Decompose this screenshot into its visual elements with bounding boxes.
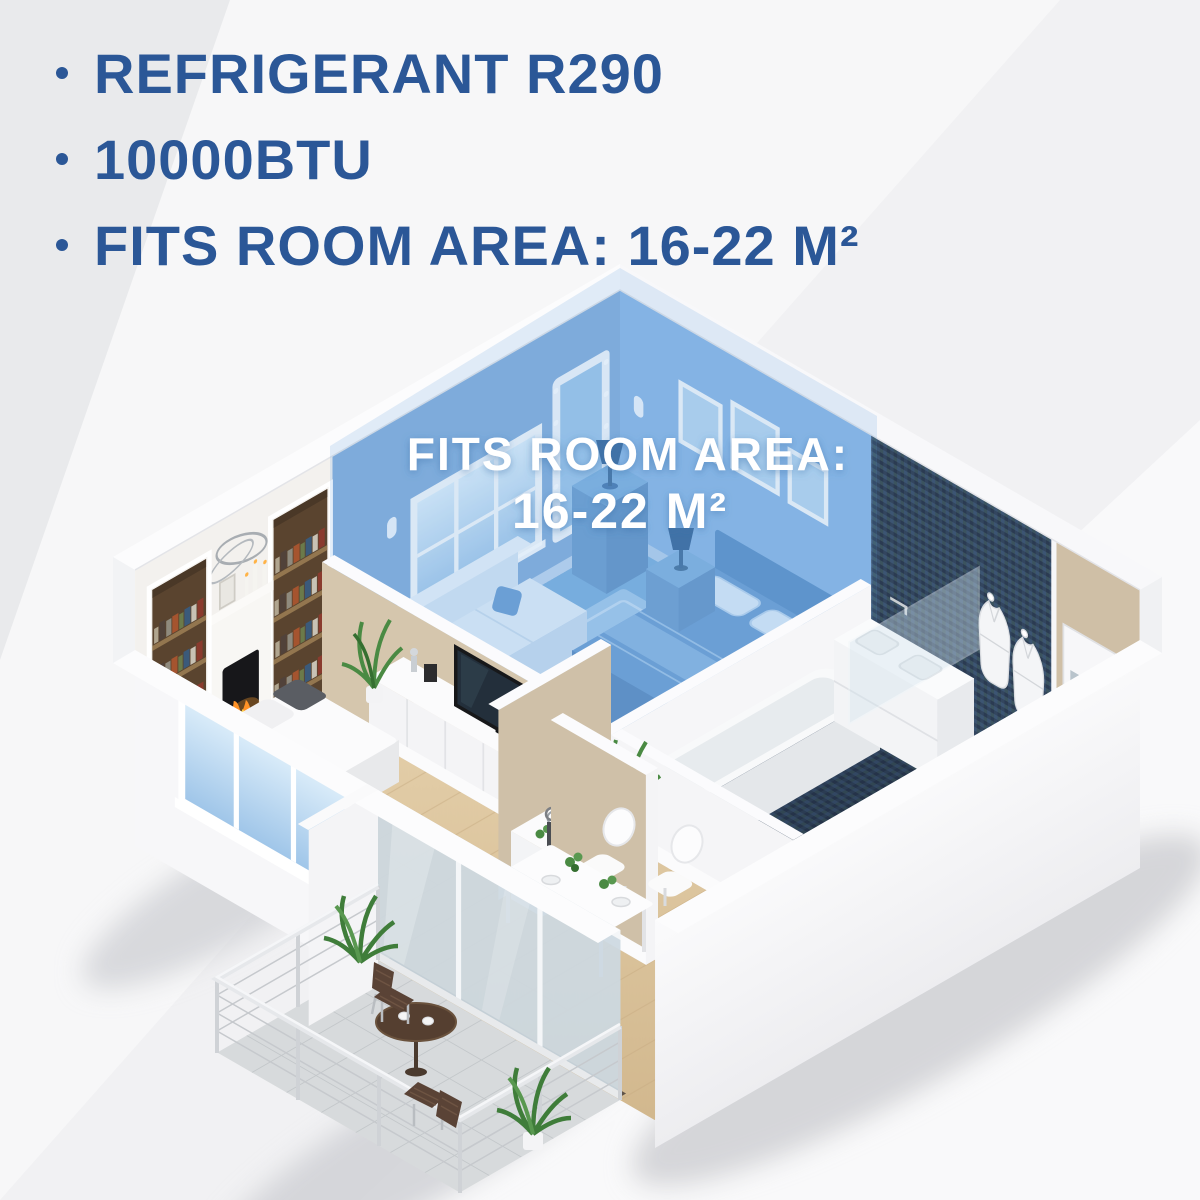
photo-frame-icon <box>424 664 437 682</box>
feature-bullet: 10000BTU <box>50 116 860 202</box>
bullet-dot-icon <box>56 67 68 79</box>
feature-list: REFRIGERANT R290 10000BTU FITS ROOM AREA… <box>50 30 860 288</box>
bullet-dot-icon <box>56 153 68 165</box>
plate <box>542 876 560 885</box>
product-infographic: FITS ROOM AREA: 16-22 M² REFRIGERANT R29… <box>0 0 1200 1200</box>
plate <box>612 898 630 907</box>
cup <box>423 1017 434 1025</box>
feature-label: 10000BTU <box>94 127 373 192</box>
bullet-dot-icon <box>56 239 68 251</box>
room-area-label-line1: FITS ROOM AREA: <box>407 428 849 480</box>
feature-label: REFRIGERANT R290 <box>94 41 664 106</box>
feature-bullet: FITS ROOM AREA: 16-22 M² <box>50 202 860 288</box>
feature-bullet: REFRIGERANT R290 <box>50 30 860 116</box>
room-area-label-line2: 16-22 M² <box>512 483 728 539</box>
feature-label: FITS ROOM AREA: 16-22 M² <box>94 213 860 278</box>
